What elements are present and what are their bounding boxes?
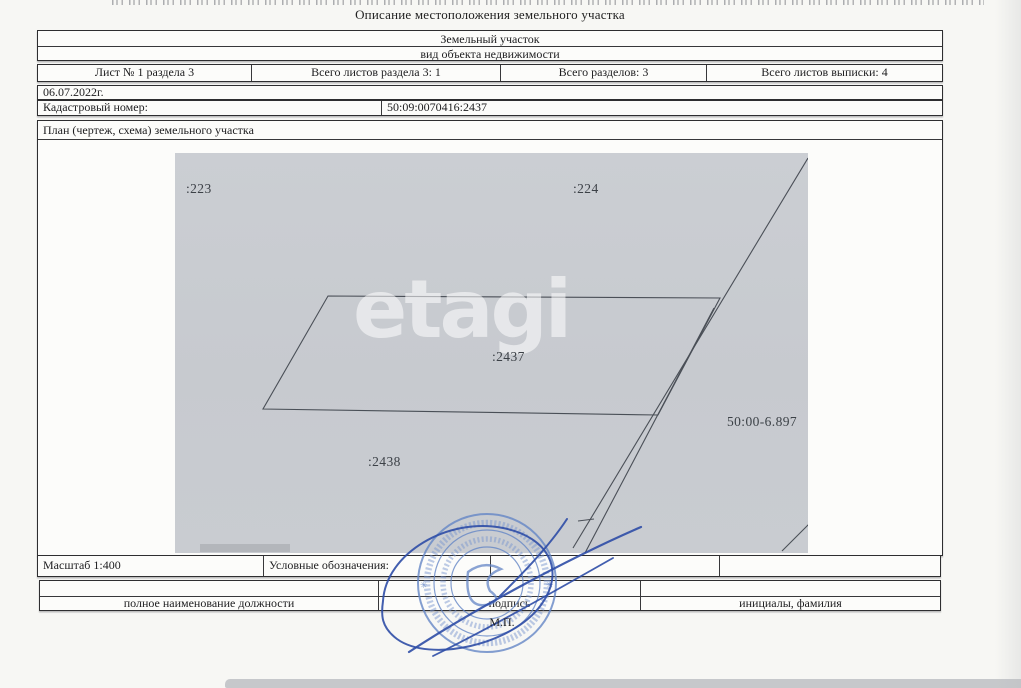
parcel-223-label: :223 xyxy=(186,181,212,196)
section-sheets-cell: Всего листов раздела 3: 1 xyxy=(251,65,500,81)
scale-cell: Масштаб 1:400 xyxy=(38,556,263,576)
road-line-secondary xyxy=(585,308,714,553)
bottom-page-edge xyxy=(225,679,1021,688)
cadastral-label: Кадастровый номер: xyxy=(38,101,381,115)
date-text: 06.07.2022г. xyxy=(38,86,942,99)
legend-empty-cell-1 xyxy=(490,556,719,576)
plan-header: План (чертеж, схема) земельного участка xyxy=(38,121,942,140)
scale-legend-row: Масштаб 1:400 Условные обозначения: xyxy=(37,555,941,577)
object-type-box: Земельный участок вид объекта недвижимос… xyxy=(37,30,943,61)
name-label: инициалы, фамилия xyxy=(640,597,940,610)
cadastral-value: 50:09:0070416:2437 xyxy=(381,101,942,115)
object-type-text: Земельный участок xyxy=(38,31,942,46)
corner-line-segment xyxy=(782,521,808,551)
watermark-text: etagi xyxy=(353,263,569,356)
legend-cell: Условные обозначения: xyxy=(263,556,490,576)
signature-input-row xyxy=(40,581,940,596)
boundary-zone-label: 50:00-6.897 xyxy=(727,414,797,429)
document-page: Описание местоположения земельного участ… xyxy=(0,0,1021,688)
position-label: полное наименование должности xyxy=(40,597,378,610)
signature-input-cell xyxy=(378,581,640,596)
legend-empty-cell-2 xyxy=(719,556,940,576)
object-kind-caption: вид объекта недвижимости xyxy=(38,46,942,60)
parcel-2438-label: :2438 xyxy=(368,454,401,469)
road-connector-tick xyxy=(578,519,594,521)
scale-bar xyxy=(200,544,290,552)
signature-caption-row: полное наименование должности подпись ин… xyxy=(40,596,940,610)
cadastral-row: Кадастровый номер: 50:09:0070416:2437 xyxy=(37,100,943,116)
plan-canvas: etagi :223 :224 :2437 :2438 50:00-6.897 xyxy=(175,153,808,553)
date-row: 06.07.2022г. xyxy=(37,85,943,100)
cut-off-text-strip xyxy=(112,0,984,5)
sheet-info-row: Лист № 1 раздела 3 Всего листов раздела … xyxy=(37,64,943,82)
plan-svg: etagi :223 :224 :2437 :2438 50:00-6.897 xyxy=(175,153,808,553)
sections-total-cell: Всего разделов: 3 xyxy=(500,65,706,81)
parcel-224-label: :224 xyxy=(573,181,599,196)
name-input-cell xyxy=(640,581,940,596)
sheet-number-cell: Лист № 1 раздела 3 xyxy=(38,65,251,81)
extract-sheets-cell: Всего листов выписки: 4 xyxy=(706,65,942,81)
seal-mark: М.П. xyxy=(470,615,534,630)
position-input-cell xyxy=(40,581,378,596)
signature-table: полное наименование должности подпись ин… xyxy=(39,580,941,611)
signature-label: подпись xyxy=(378,597,640,610)
page-title: Описание местоположения земельного участ… xyxy=(37,7,943,23)
parcel-2437-label: :2437 xyxy=(492,349,525,364)
